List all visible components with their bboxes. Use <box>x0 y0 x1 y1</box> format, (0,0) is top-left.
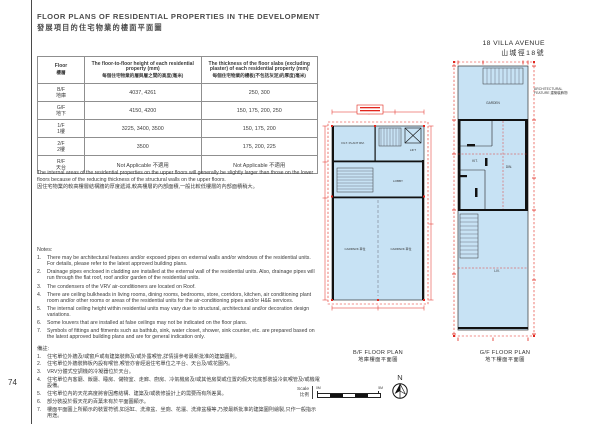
notes-list-zh: 1.住宅單位外牆及/或窗戶或有建築裝飾及/或外露喉管,詳情請參考最新批准的建築圖… <box>37 354 320 420</box>
page-title: FLOOR PLANS OF RESIDENTIAL PROPERTIES IN… <box>37 12 327 21</box>
note-item: 6.部分裝設於假天花的百葉未有於平面圖顯示。 <box>37 399 320 405</box>
left-margin-rule <box>31 0 32 424</box>
table-row: 2/F2樓 3500 175, 200, 225 <box>38 138 318 156</box>
svg-text:KIT.: KIT. <box>472 159 478 163</box>
table-row: B/F地庫 4037, 4261 250, 300 <box>38 84 318 102</box>
svg-text:LIFT: LIFT <box>410 148 416 152</box>
note-item: 1.There may be architectural features an… <box>37 255 320 267</box>
scale-indicator: Scale 比例 0M 5M <box>297 386 381 399</box>
header-thickness: The thickness of the floor slabs (exclud… <box>201 57 318 84</box>
note-item: 1.住宅單位外牆及/或窗戶或有建築裝飾及/或外露喉管,詳情請參考最新批准的建築圖… <box>37 354 320 360</box>
notes-section: Notes: 1.There may be architectural feat… <box>37 247 320 421</box>
floor-spec-table-wrap: Floor 樓層 The floor-to-floor height of ea… <box>37 56 318 174</box>
svg-text:CARPARK 車位: CARPARK 車位 <box>344 246 365 251</box>
bf-floor-plan: FILT. PLANT RM. LIFT LOBBY CARPARK 車位 CA… <box>317 104 439 316</box>
note-item: 2.住宅單位外牆裝飾板內設有喉管,喉管亦會經過住宅單位之平台、天台及/或花園內。 <box>37 361 320 367</box>
header-floor: Floor 樓層 <box>38 57 85 84</box>
notes-label-zh: 備註: <box>37 344 320 352</box>
gf-unit-footprint <box>458 66 528 330</box>
plan-annotation: ARCHITECTURAL FEATURE 建築裝飾物 <box>534 87 578 96</box>
north-arrow-icon: N <box>389 372 411 402</box>
gf-plan-caption: G/F FLOOR PLAN 地下樓面平面圖 <box>445 350 565 363</box>
note-item: 7.Symbols of fittings and fitments such … <box>37 328 320 340</box>
svg-text:FILT. PLANT RM.: FILT. PLANT RM. <box>341 141 364 145</box>
note-item: 4.住宅單位內客廳、飯廳、睡房、儲物室、走廊、廚房、冷氣機房及/或其他房間或位置… <box>37 377 320 390</box>
note-item: 3.VRV分體式空調機的冷凝器位於天台。 <box>37 369 320 375</box>
page-title-chinese: 發展項目的住宅物業的樓面平面圖 <box>37 23 327 33</box>
note-item: 4.There are ceiling bulkheads in living … <box>37 292 320 304</box>
svg-text:N: N <box>397 373 402 382</box>
table-header-row: Floor 樓層 The floor-to-floor height of ea… <box>38 57 318 84</box>
table-row: 1/F1樓 3225, 3400, 3500 150, 175, 200 <box>38 120 318 138</box>
scale-min-label: 0M <box>316 386 321 390</box>
svg-text:LOBBY: LOBBY <box>393 179 403 183</box>
gf-floor-plan: GARDEN KIT. DIN. LIV. <box>445 58 545 342</box>
scale-label: Scale 比例 <box>297 387 309 398</box>
dimension-label-box <box>357 105 383 114</box>
scale-max-label: 5M <box>378 386 383 390</box>
note-item: 5.The internal ceiling height within res… <box>37 306 320 318</box>
header-height: The floor-to-floor height of each reside… <box>85 57 202 84</box>
internal-area-remark: The internal areas of the residential pr… <box>37 170 319 190</box>
building-title: 18 VILLA AVENUE 山城徑18號 <box>455 40 545 57</box>
note-item: 5.住宅單位內的天花高度將會因應結構、建築及/或裝修設計上的需要而有所差異。 <box>37 391 320 397</box>
page-number: 74 <box>8 378 17 387</box>
scale-bar: 0M 5M <box>317 386 381 399</box>
floor-spec-table: Floor 樓層 The floor-to-floor height of ea… <box>37 56 318 174</box>
notes-label-en: Notes: <box>37 247 320 253</box>
scale-divider <box>312 386 313 399</box>
note-item: 3.The condensers of the VRV air-conditio… <box>37 284 320 290</box>
note-item: 7.樓面平面圖上所顯示的裝置符號,如浴缸、洗滌盆、坐廁、花灑、洗滌盆檯等,乃按最… <box>37 407 320 420</box>
svg-text:CARPARK 車位: CARPARK 車位 <box>390 246 411 251</box>
svg-text:DIN.: DIN. <box>506 165 512 169</box>
brochure-page: { "page": { "number": "74" }, "header": … <box>0 0 600 424</box>
table-row: G/F地下 4150, 4200 150, 175, 200, 250 <box>38 102 318 120</box>
bf-plan-caption: B/F FLOOR PLAN 地庫樓面平面圖 <box>317 350 439 363</box>
svg-text:GARDEN: GARDEN <box>486 101 500 105</box>
svg-text:LIV.: LIV. <box>494 269 500 273</box>
notes-list-en: 1.There may be architectural features an… <box>37 255 320 341</box>
note-item: 2.Drainage pipes enclosed in cladding ar… <box>37 269 320 281</box>
note-item: 6.Some louvers that are installed at fal… <box>37 320 320 326</box>
